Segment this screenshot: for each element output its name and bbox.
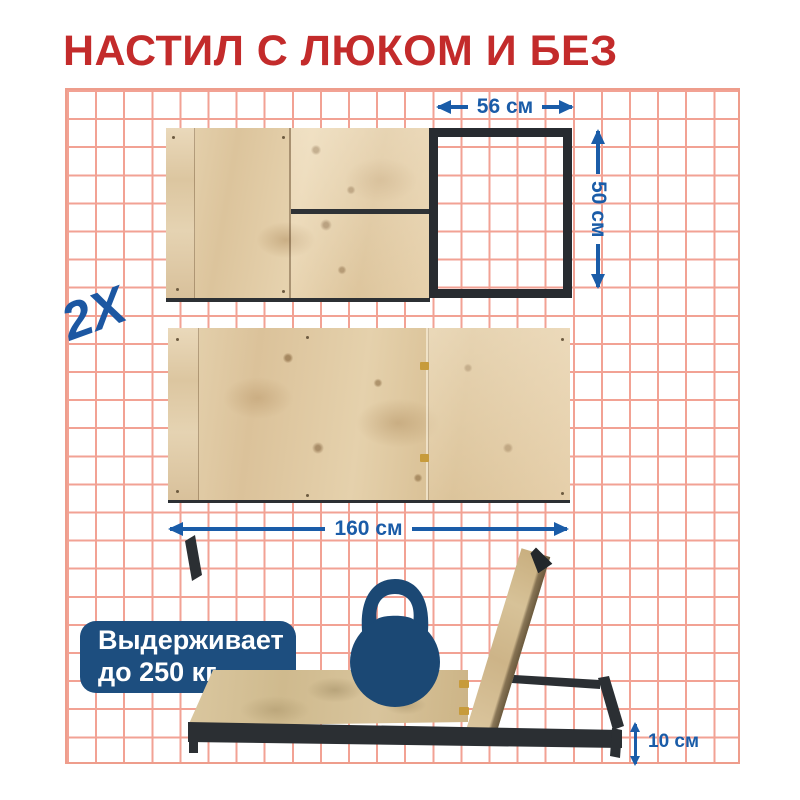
right-panel-overlay	[428, 328, 570, 502]
frame-bottom-bar	[188, 722, 622, 749]
arrow-right-icon	[542, 105, 572, 109]
arrow-up-icon	[596, 131, 600, 174]
screws	[176, 338, 179, 341]
arrow-left-icon	[438, 105, 468, 109]
dimension-label: 50 см	[586, 181, 610, 237]
infographic-canvas: НАСТИЛ С ЛЮКОМ И БЕЗ 56 см 50 см 2X 16	[0, 0, 800, 800]
hatch-door-open	[466, 548, 550, 738]
plywood-edge-strip	[168, 328, 199, 502]
dimension-label: 56 см	[477, 95, 533, 119]
page-title: НАСТИЛ С ЛЮКОМ И БЕЗ	[63, 30, 623, 73]
dimension-frame-height-label: 10 см	[648, 731, 699, 753]
arrow-down-icon	[596, 244, 600, 287]
top-deck-photo	[166, 128, 430, 300]
dimension-hatch-width: 56 см	[438, 96, 572, 118]
arrow-right-icon	[412, 527, 567, 531]
arrow-left-icon	[170, 527, 325, 531]
arrow-up-icon	[634, 724, 637, 744]
hinge	[420, 362, 429, 370]
full-deck-photo	[168, 328, 570, 502]
screws	[172, 136, 175, 139]
dimension-hatch-depth: 50 см	[584, 131, 612, 287]
door-corner-bracket	[526, 546, 556, 576]
deck-front-edge	[166, 298, 430, 302]
open-hatch-frame	[429, 128, 572, 298]
plywood-edge-strip	[166, 128, 195, 300]
frame-cross-member	[185, 535, 202, 581]
kettlebell-icon	[345, 575, 445, 707]
arrow-down-icon	[634, 744, 637, 764]
hinge	[459, 680, 469, 688]
hinge	[420, 454, 429, 462]
dimension-frame-height-arrow	[627, 724, 643, 764]
hatch-lid-gap	[291, 209, 430, 214]
frame-left-foot	[189, 740, 198, 753]
hinge	[459, 707, 469, 715]
hatch-lids-overlay	[291, 128, 430, 300]
deck-front-edge	[168, 500, 570, 503]
frame-right-leg	[610, 728, 622, 758]
frame-slant-member	[596, 676, 624, 732]
